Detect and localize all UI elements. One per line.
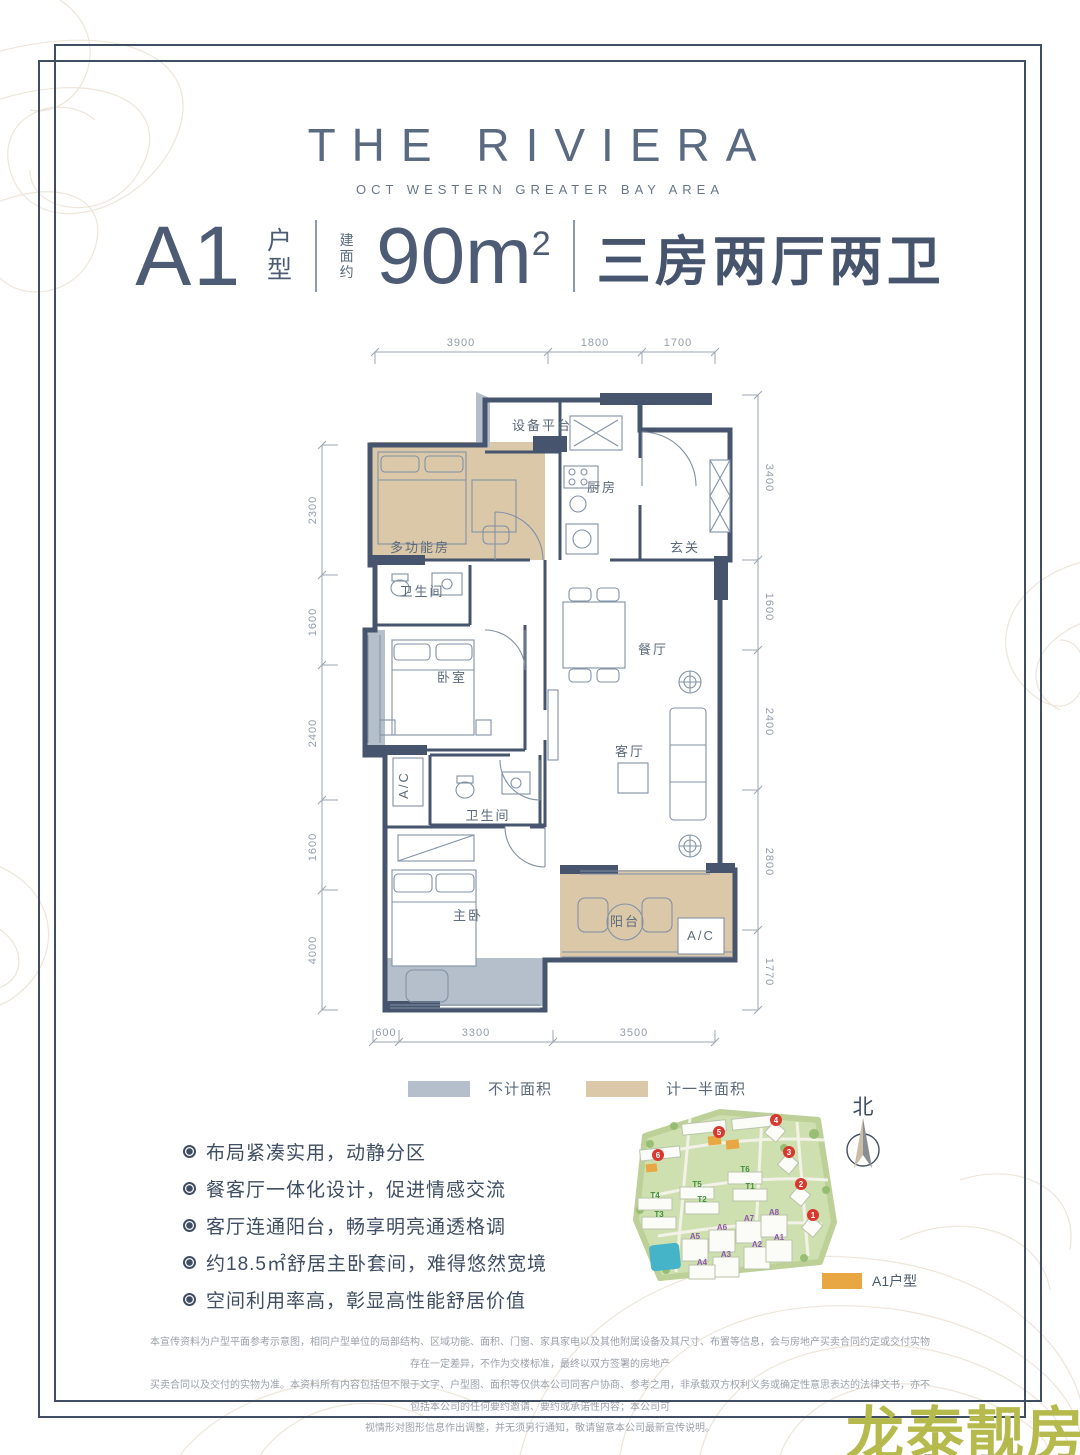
feature-item: 餐客厅一体化设计，促进情感交流 [183,1170,547,1207]
unit-type-label: 户型 [266,227,293,285]
room-label-entry: 玄关 [670,540,700,555]
room-label-ac-right: A/C [687,928,715,943]
area-superscript: 2 [532,225,551,263]
dim-right-1: 1600 [763,593,775,621]
feature-text: 布局紧凑实用，动静分区 [206,1138,426,1165]
north-label: 北 [853,1096,874,1119]
bullet-icon [183,1293,196,1306]
disclaimer-line-1: 本宣传资料为户型平面参考示意图，相同户型单位的局部结构、区域功能、面积、门窗、家… [150,1332,930,1375]
feature-text: 空间利用率高，彰显高性能舒居价值 [206,1286,526,1313]
dim-left-0: 2300 [307,496,319,524]
feature-item: 空间利用率高，彰显高性能舒居价值 [183,1281,547,1318]
bullet-icon [183,1256,196,1269]
room-label-bedroom: 卧室 [437,670,467,685]
svg-text:A4: A4 [697,1258,708,1267]
svg-text:A3: A3 [721,1250,732,1259]
floor-plan: 设备平台 厨房 玄关 多功能房 卫生间 卧室 餐厅 客厅 卫生间 主卧 阳台 A… [280,330,800,1070]
room-label-equip: 设备平台 [512,418,572,433]
svg-text:1: 1 [811,1211,816,1220]
disclaimer-line-3: 视情形对图形信息作出调整，并无须另行通知，敬请留意本公司最新宣传说明。 [150,1418,930,1440]
compass-needle-left [854,1118,863,1168]
legend-label-tan: 计一半面积 [666,1078,746,1099]
a1-legend-swatch [822,1273,862,1289]
room-label-master: 主卧 [453,908,483,923]
site-pool [649,1243,682,1272]
svg-text:4: 4 [774,1116,779,1125]
svg-text:T3: T3 [654,1210,664,1219]
layout-description: 三房两厅两卫 [597,217,945,296]
bullet-icon [183,1219,196,1232]
feature-item: 布局紧凑实用，动静分区 [183,1133,547,1170]
dim-bottom-1: 3300 [462,1027,490,1039]
dim-right-2: 2400 [763,708,775,736]
feature-text: 约18.5㎡舒居主卧套间，难得悠然宽境 [206,1249,547,1276]
svg-text:T2: T2 [697,1195,707,1204]
area-legend: 不计面积 计一半面积 [408,1078,746,1099]
project-subtitle: OCT WESTERN GREATER BAY AREA [0,182,1080,197]
feature-item: 约18.5㎡舒居主卧套间，难得悠然宽境 [183,1244,547,1281]
brand-header: THE RIVIERA OCT WESTERN GREATER BAY AREA [0,118,1080,197]
dim-top-0: 3900 [447,337,475,349]
area-prefix-label: 建面约 [339,232,354,280]
dim-left-1: 1600 [307,608,319,636]
svg-text:T5: T5 [692,1180,702,1189]
room-label-dining: 餐厅 [638,642,668,657]
svg-text:T1: T1 [745,1182,755,1191]
svg-text:A5: A5 [690,1232,701,1241]
dim-top-1: 1800 [581,337,609,349]
room-label-multi: 多功能房 [390,540,450,555]
dim-right-0: 3400 [763,464,775,492]
svg-text:6: 6 [656,1151,661,1160]
dim-right-4: 1770 [763,958,775,986]
dim-bottom-2: 3500 [620,1027,648,1039]
disclaimer: 本宣传资料为户型平面参考示意图，相同户型单位的局部结构、区域功能、面积、门窗、家… [150,1332,930,1440]
legend-swatch-tan [586,1081,648,1097]
svg-text:3: 3 [787,1148,792,1157]
svg-text:A8: A8 [769,1208,780,1217]
legend-swatch-gray [408,1081,470,1097]
disclaimer-line-2: 买卖合同以及交付的实物为准。本资料所有内容包括但不限于文字、户型图、面积等仅供本… [150,1375,930,1418]
feature-text: 客厅连通阳台，畅享明亮通透格调 [206,1212,506,1239]
site-map-legend: A1户型 [822,1271,917,1291]
dim-left-4: 4000 [307,936,319,964]
spec-divider [573,220,575,292]
svg-text:5: 5 [717,1128,722,1137]
bullet-icon [183,1145,196,1158]
svg-text:A1: A1 [774,1233,785,1242]
room-label-bath2: 卫生间 [465,808,510,823]
legend-label-gray: 不计面积 [488,1078,552,1099]
feature-item: 客厅连通阳台，畅享明亮通透格调 [183,1207,547,1244]
feature-text: 餐客厅一体化设计，促进情感交流 [206,1175,506,1202]
svg-text:T4: T4 [650,1191,660,1200]
area-value: 90m2 [376,216,551,296]
feature-list: 布局紧凑实用，动静分区 餐客厅一体化设计，促进情感交流 客厅连通阳台，畅享明亮通… [183,1133,547,1318]
dim-right-3: 2800 [763,848,775,876]
room-label-ac-left: A/C [396,771,411,799]
site-map: 6 5 4 3 2 1 A5 A6 A7 A8 A2 A1 A3 A4 T6 T… [612,1086,840,1282]
a1-legend-label: A1户型 [872,1271,917,1291]
room-label-balcony: 阳台 [610,914,640,929]
poster-page: { "brand": { "title": "THE RIVIERA", "su… [0,0,1080,1455]
room-label-kitchen: 厨房 [587,480,617,495]
svg-text:T6: T6 [740,1165,750,1174]
watermark-logo: 龙泰靓房 [846,1387,1080,1455]
spec-divider [315,220,317,292]
unit-code: A1 [135,214,242,298]
svg-text:A6: A6 [717,1223,728,1232]
compass-needle-right [863,1118,872,1168]
svg-text:2: 2 [799,1180,804,1189]
svg-text:A7: A7 [744,1214,755,1223]
dim-left-3: 1600 [307,833,319,861]
dim-top-2: 1700 [664,337,692,349]
dim-left-2: 2400 [307,719,319,747]
unit-spec-row: A1 户型 建面约 90m2 三房两厅两卫 [0,214,1080,298]
north-indicator: 北 [828,1092,898,1187]
room-label-bath1: 卫生间 [399,584,444,599]
bullet-icon [183,1182,196,1195]
project-title: THE RIVIERA [0,118,1080,172]
room-label-living: 客厅 [615,744,645,759]
svg-text:A2: A2 [752,1240,763,1249]
dim-bottom-0: 600 [375,1027,396,1039]
